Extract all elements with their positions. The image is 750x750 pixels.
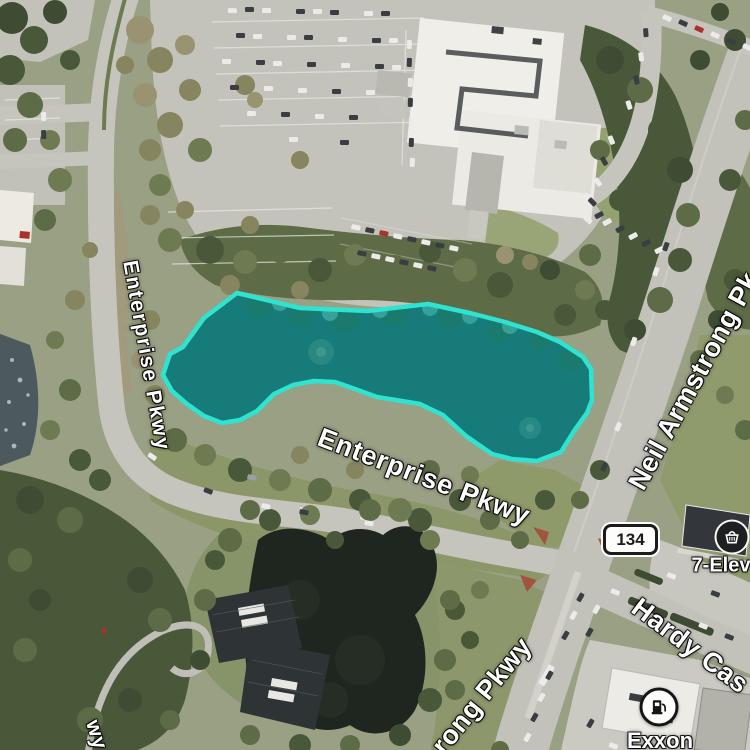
gas-station-icon — [650, 698, 669, 717]
map-viewport[interactable]: Enterprise Pkwy Enterprise Pkwy Neil Arm… — [0, 0, 750, 750]
convenience-store-icon — [723, 528, 742, 547]
seven-eleven-poi-icon[interactable] — [717, 522, 748, 553]
route-shield-134: 134 — [603, 524, 658, 555]
route-shield-number: 134 — [616, 530, 644, 550]
satellite-imagery[interactable] — [0, 0, 750, 750]
red-awning — [19, 231, 30, 239]
seven-eleven-poi-label[interactable]: 7-Elev — [692, 555, 750, 578]
exxon-poi-icon[interactable] — [640, 688, 679, 727]
exxon-poi-label[interactable]: Exxon — [627, 728, 693, 750]
